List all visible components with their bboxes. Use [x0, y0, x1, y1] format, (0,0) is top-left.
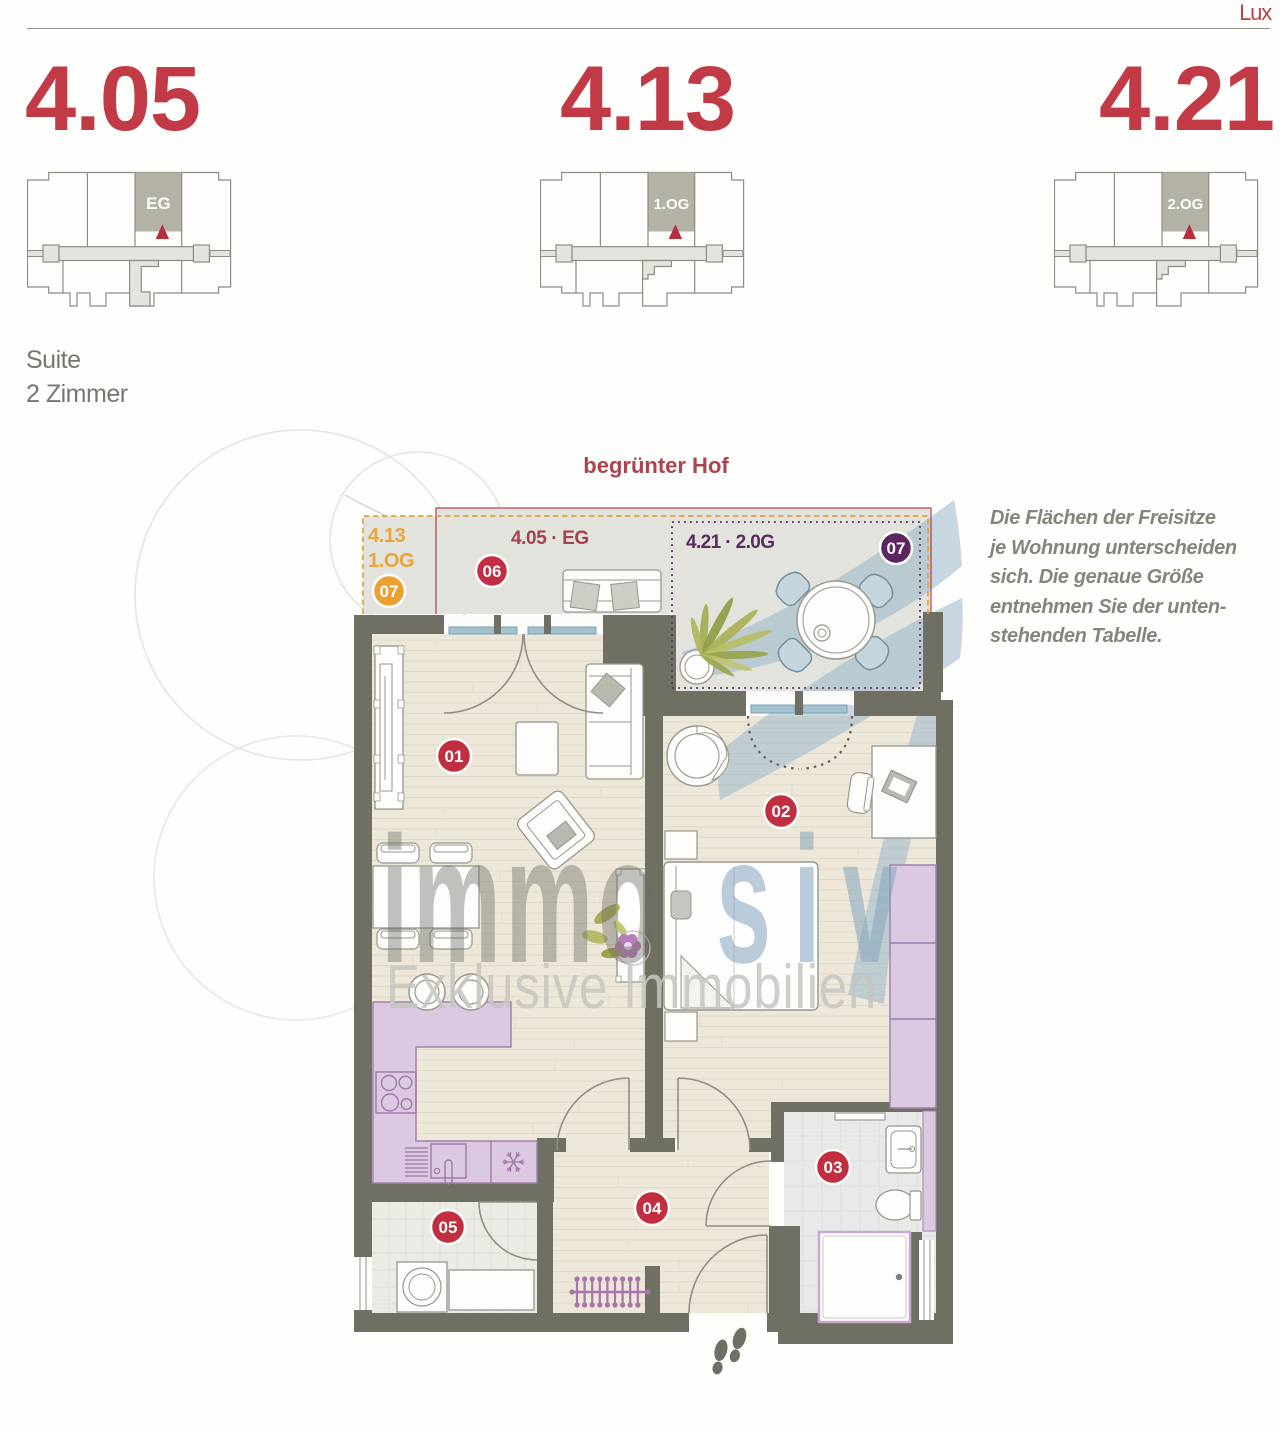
svg-text:begrünter Hof: begrünter Hof	[583, 453, 729, 478]
svg-text:04: 04	[643, 1199, 662, 1218]
svg-text:07: 07	[887, 539, 906, 558]
svg-text:01: 01	[445, 747, 464, 766]
svg-text:Exklusive Immobilien: Exklusive Immobilien	[386, 953, 877, 1022]
svg-text:03: 03	[824, 1158, 843, 1177]
svg-text:02: 02	[772, 802, 791, 821]
svg-text:4.13: 4.13	[368, 525, 406, 547]
svg-text:4.05 · EG: 4.05 · EG	[511, 528, 589, 549]
svg-text:4.21 · 2.0G: 4.21 · 2.0G	[686, 532, 774, 553]
svg-text:07: 07	[380, 582, 399, 601]
svg-text:05: 05	[439, 1218, 458, 1237]
svg-text:06: 06	[483, 562, 502, 581]
svg-text:1.OG: 1.OG	[368, 550, 414, 572]
